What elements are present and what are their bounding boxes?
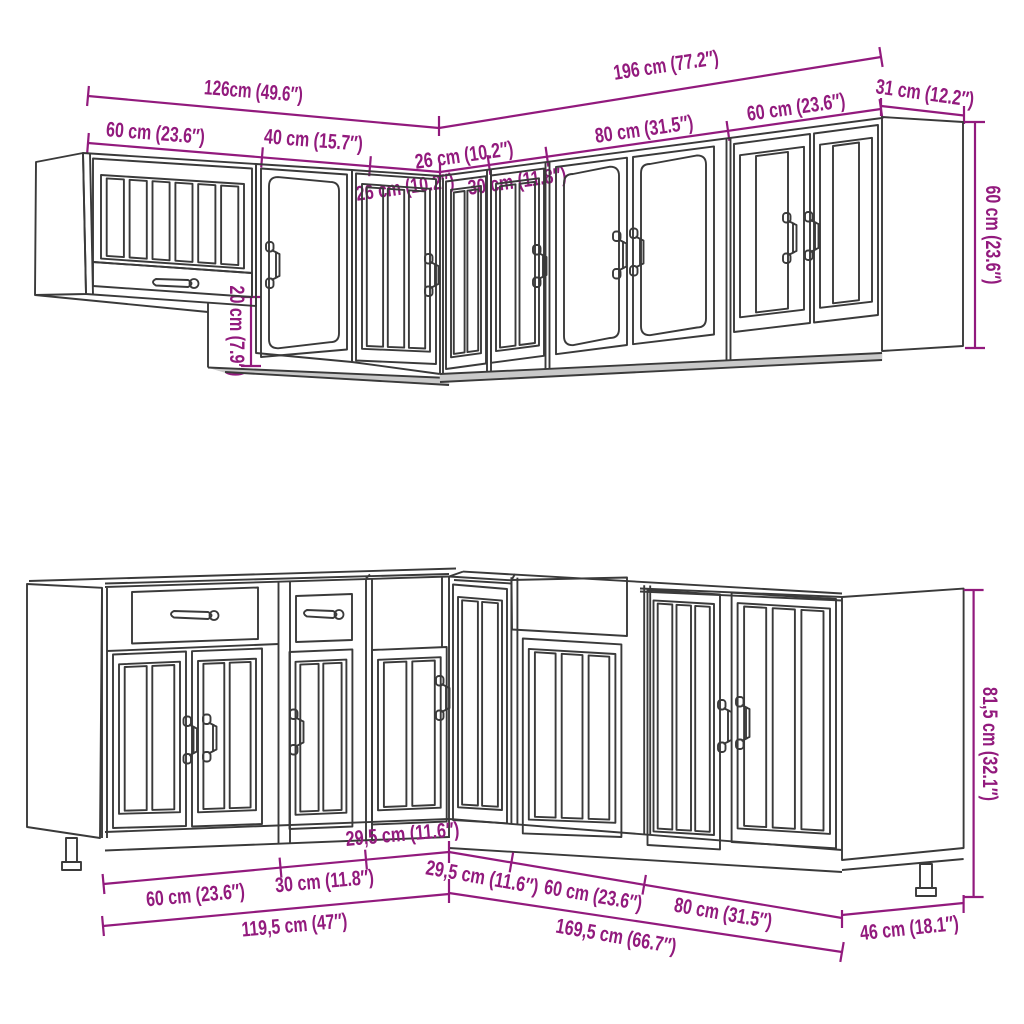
svg-text:60 cm (23.6″): 60 cm (23.6″) — [981, 186, 1004, 285]
svg-text:81,5 cm (32.1″): 81,5 cm (32.1″) — [978, 687, 1001, 801]
svg-text:20 cm (7.9″): 20 cm (7.9″) — [225, 286, 248, 377]
